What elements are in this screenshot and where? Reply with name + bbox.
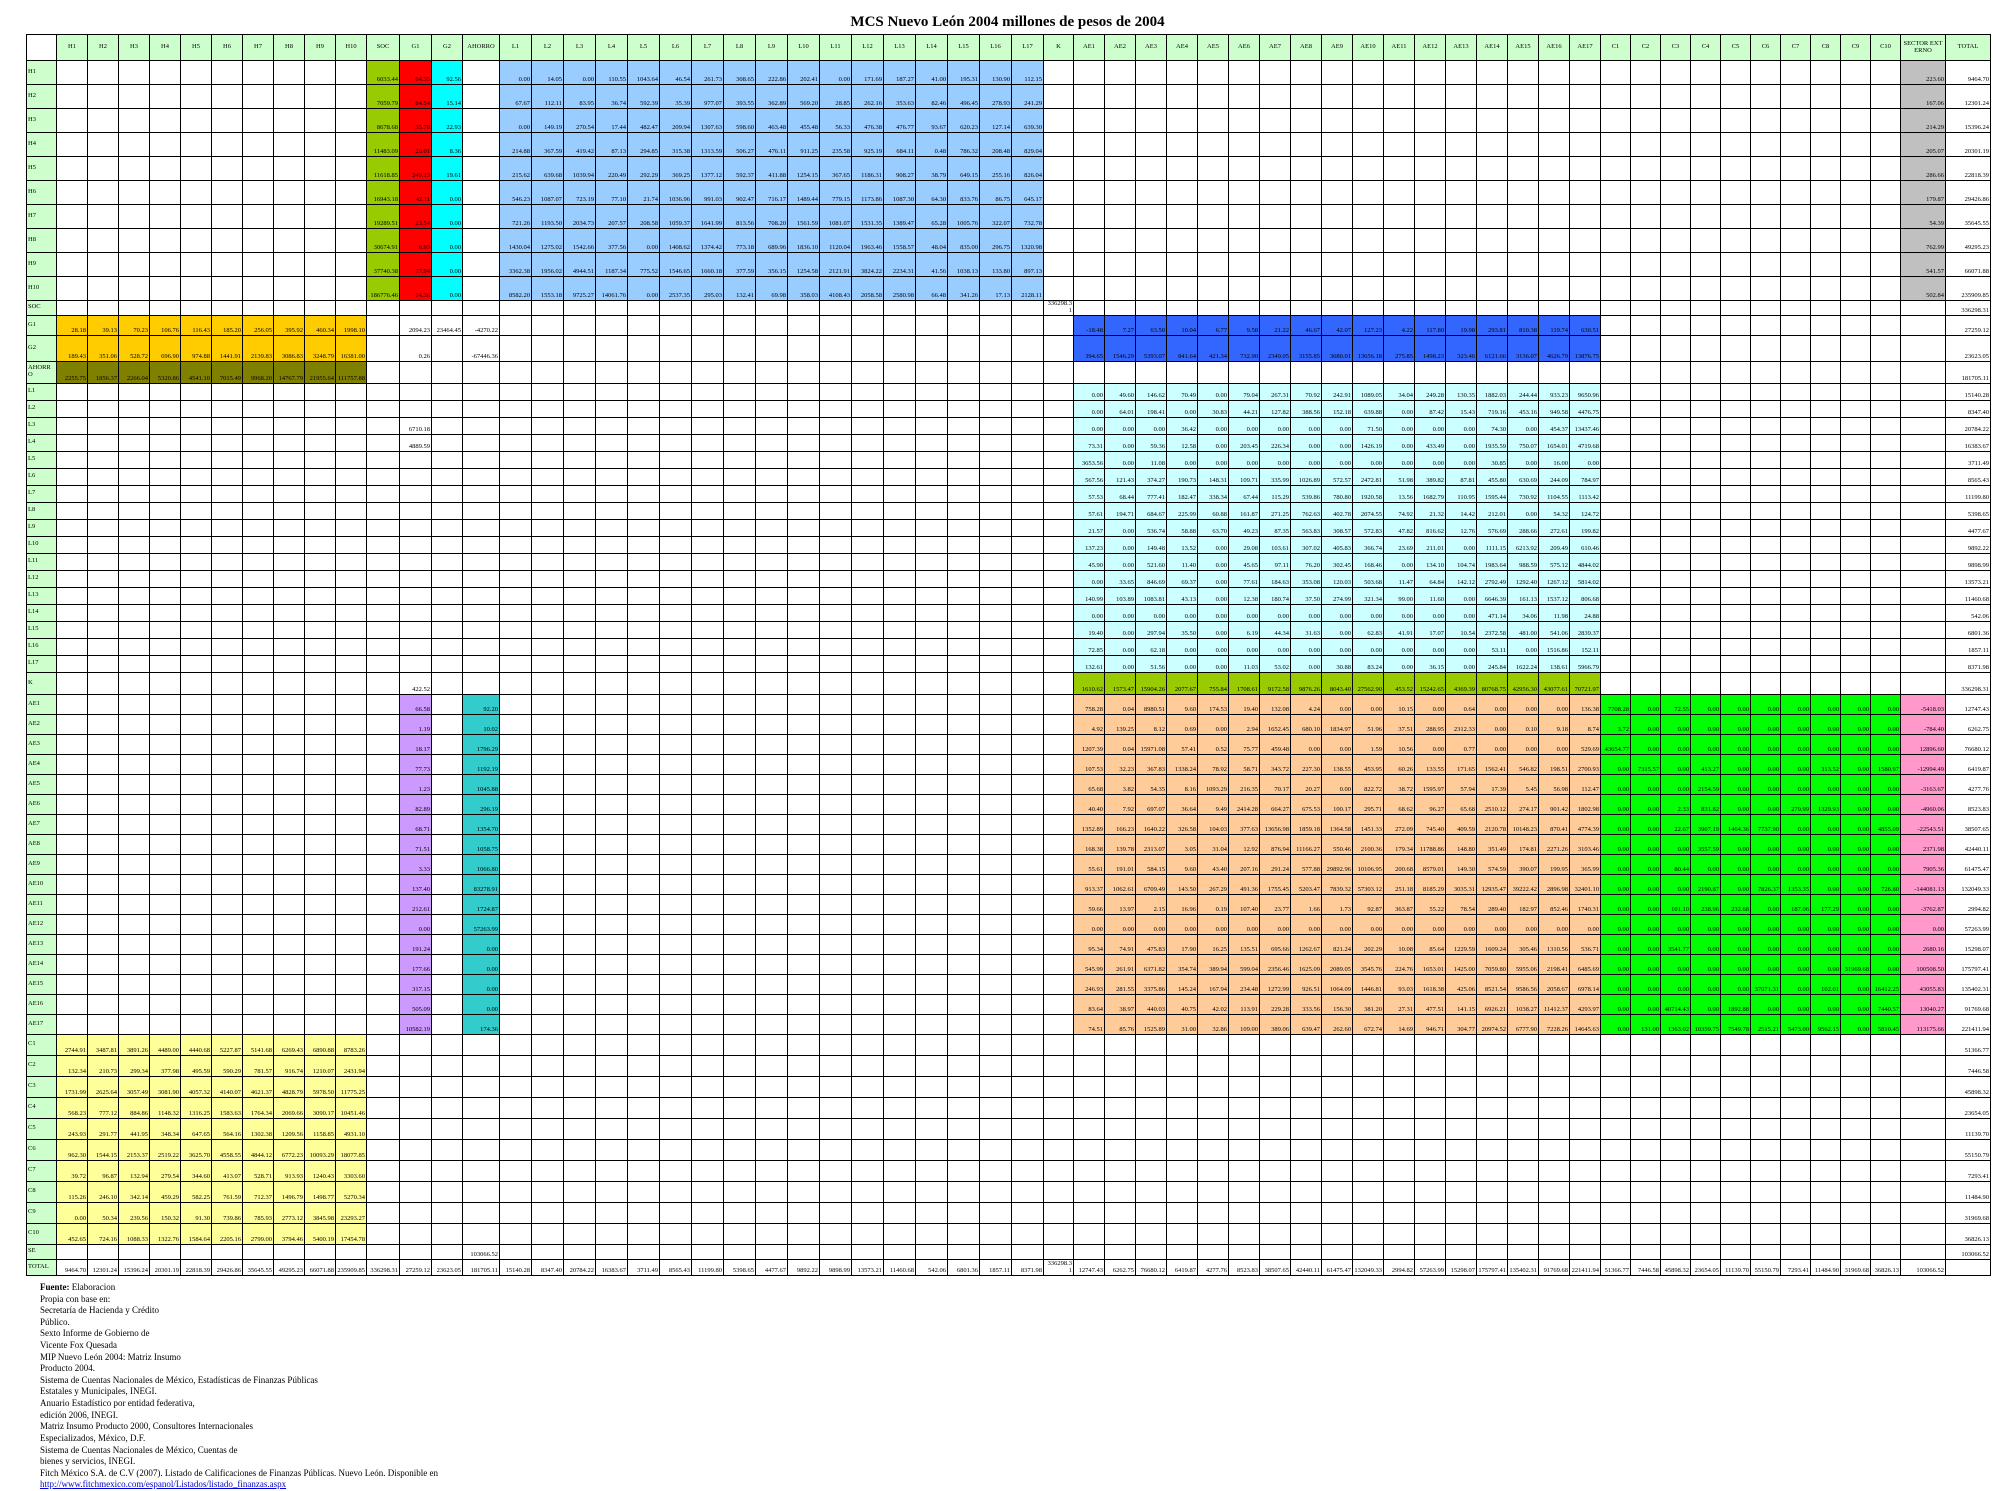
cell-TOTAL-H6: 29426.86 [212, 1259, 243, 1275]
cell-C8-L15 [948, 1181, 980, 1202]
cell-L2-AE14: 719.16 [1477, 400, 1508, 417]
cell-AE12-H5 [181, 914, 212, 934]
cell-AHORRO-L17 [1012, 361, 1044, 383]
cell-AE13-L14 [916, 934, 948, 954]
cell-H9-AE1 [1074, 253, 1105, 277]
cell-L14-L2 [532, 604, 564, 621]
col-header-H6: H6 [212, 35, 243, 61]
cell-AE5-L16 [980, 774, 1012, 794]
cell-AE10-H10 [336, 874, 367, 894]
cell-H4-C6 [1751, 133, 1781, 157]
cell-L10-C4 [1691, 536, 1721, 553]
cell-AE12-C2: 0.00 [1631, 914, 1661, 934]
cell-L6-TOTAL: 8565.43 [1946, 468, 1991, 485]
cell-AE11-C1: 0.00 [1601, 894, 1631, 914]
cell-AE15-L16 [980, 974, 1012, 994]
cell-C10-C8 [1811, 1223, 1841, 1244]
cell-C6-L4 [596, 1139, 628, 1160]
cell-L9-L10 [788, 519, 820, 536]
cell-L2-AE5: 30.83 [1198, 400, 1229, 417]
cell-AE8-C8: 0.00 [1811, 834, 1841, 854]
col-header-C9: C9 [1841, 35, 1871, 61]
cell-L5-H4 [150, 451, 181, 468]
cell-H4-L16: 208.48 [980, 133, 1012, 157]
cell-C9-L4 [596, 1202, 628, 1223]
cell-AE9-L9 [756, 854, 788, 874]
cell-H4-K [1044, 133, 1074, 157]
cell-TOTAL-L16: 1857.11 [980, 1259, 1012, 1275]
cell-H7-AE13 [1446, 205, 1477, 229]
cell-AE4-H10 [336, 754, 367, 774]
cell-G1-H4: 106.76 [150, 315, 181, 335]
cell-L17-H2 [88, 655, 119, 672]
cell-C7-C2 [1631, 1160, 1661, 1181]
cell-AE16-AE15: 1038.27 [1508, 994, 1539, 1014]
cell-C10-H10: 17454.78 [336, 1223, 367, 1244]
cell-AE6-AE8: 675.53 [1291, 794, 1322, 814]
cell-AE14-L2 [532, 954, 564, 974]
cell-AE8-C3: 0.00 [1661, 834, 1691, 854]
cell-L3-C3 [1661, 417, 1691, 434]
cell-AE9-C1: 0.00 [1601, 854, 1631, 874]
cell-AE14-H10 [336, 954, 367, 974]
cell-H1-AHORRO [463, 61, 500, 85]
cell-G2-L5 [628, 335, 660, 361]
cell-AE15-AE16: 2058.67 [1539, 974, 1570, 994]
cell-AE3-H4 [150, 734, 181, 754]
source-line: Fitch México S.A. de C.V (2007). Listado… [40, 1468, 438, 1479]
cell-C10-H5: 1584.64 [181, 1223, 212, 1244]
cell-C1-L15 [948, 1034, 980, 1055]
cell-H7-AE8 [1291, 205, 1322, 229]
cell-H4-AE12 [1415, 133, 1446, 157]
cell-H3-L4: 17.44 [596, 109, 628, 133]
cell-L6-L7 [692, 468, 724, 485]
cell-AE16-AE8: 333.56 [1291, 994, 1322, 1014]
cell-C9-AE15 [1508, 1202, 1539, 1223]
cell-AE5-AE1: 65.68 [1074, 774, 1105, 794]
cell-L12-C6 [1751, 570, 1781, 587]
cell-SE-H3 [119, 1244, 150, 1259]
cell-C1-L9 [756, 1034, 788, 1055]
cell-C1-C2 [1631, 1034, 1661, 1055]
cell-AE12-AE14: 0.00 [1477, 914, 1508, 934]
cell-AE14-L3 [564, 954, 596, 974]
cell-H7-L2: 1193.50 [532, 205, 564, 229]
cell-L7-AE8: 539.86 [1291, 485, 1322, 502]
col-header-C10: C10 [1871, 35, 1901, 61]
cell-C2-C7 [1781, 1055, 1811, 1076]
cell-SE-L3 [564, 1244, 596, 1259]
cell-AE1-AE9: 0.00 [1322, 694, 1353, 714]
cell-AE10-C6: 7826.37 [1751, 874, 1781, 894]
cell-AE12-AE3: 0.00 [1136, 914, 1167, 934]
cell-L7-H9 [305, 485, 336, 502]
cell-L10-L3 [564, 536, 596, 553]
cell-C10-H3: 1088.33 [119, 1223, 150, 1244]
cell-L4-L15 [948, 434, 980, 451]
cell-L3-L3 [564, 417, 596, 434]
cell-C1-AE15 [1508, 1034, 1539, 1055]
cell-H3-AHORRO [463, 109, 500, 133]
cell-L6-AE10: 2472.81 [1353, 468, 1384, 485]
cell-C1-H4: 4489.00 [150, 1034, 181, 1055]
cell-AE17-SOC [367, 1014, 400, 1034]
cell-AE1-H3 [119, 694, 150, 714]
cell-H9-AHORRO [463, 253, 500, 277]
cell-C1-H3: 3891.26 [119, 1034, 150, 1055]
cell-L13-C7 [1781, 587, 1811, 604]
cell-L9-C1 [1601, 519, 1631, 536]
cell-C5-AE1 [1074, 1118, 1105, 1139]
col-header-L1: L1 [500, 35, 532, 61]
cell-AE13-L10 [788, 934, 820, 954]
cell-SOC-AE11 [1384, 301, 1415, 316]
cell-AE7-H9 [305, 814, 336, 834]
col-header-G2: G2 [432, 35, 463, 61]
cell-AE10-L10 [788, 874, 820, 894]
cell-L11-AE4: 11.40 [1167, 553, 1198, 570]
cell-C9-AE13 [1446, 1202, 1477, 1223]
row-header-AE12: AE12 [27, 914, 57, 934]
cell-C9-H2: 50.34 [88, 1202, 119, 1223]
cell-C8-AE2 [1105, 1181, 1136, 1202]
cell-L12-H3 [119, 570, 150, 587]
cell-H9-C4 [1691, 253, 1721, 277]
cell-AE11-L5 [628, 894, 660, 914]
cell-C7-G1 [400, 1160, 432, 1181]
row-header-AE8: AE8 [27, 834, 57, 854]
cell-H9-H4 [150, 253, 181, 277]
cell-C8-C7 [1781, 1181, 1811, 1202]
cell-L6-AE9: 572.57 [1322, 468, 1353, 485]
cell-L4-AE5: 0.00 [1198, 434, 1229, 451]
cell-SE-L16 [980, 1244, 1012, 1259]
cell-AHORRO-TOTAL: 181705.11 [1946, 361, 1991, 383]
cell-L4-TOTAL: 16383.67 [1946, 434, 1991, 451]
cell-C6-L11 [820, 1139, 852, 1160]
cell-L8-K [1044, 502, 1074, 519]
cell-C2-AE6 [1229, 1055, 1260, 1076]
cell-AE1-L8 [724, 694, 756, 714]
cell-H6-H6 [212, 181, 243, 205]
col-header-AE14: AE14 [1477, 35, 1508, 61]
cell-L15-C3 [1661, 621, 1691, 638]
cell-AE12-AE7: 0.00 [1260, 914, 1291, 934]
cell-G1-L2 [532, 315, 564, 335]
cell-AE4-L13 [884, 754, 916, 774]
cell-C2-K [1044, 1055, 1074, 1076]
col-header-AE13: AE13 [1446, 35, 1477, 61]
cell-C1-C4 [1691, 1034, 1721, 1055]
cell-H10-C10 [1871, 277, 1901, 301]
cell-AE17-AE1: 74.51 [1074, 1014, 1105, 1034]
cell-C4-L10 [788, 1097, 820, 1118]
cell-C8-H6: 761.59 [212, 1181, 243, 1202]
cell-H9-AE15 [1508, 253, 1539, 277]
cell-G2-AE17: 13876.75 [1570, 335, 1601, 361]
cell-L2-AHORRO [463, 400, 500, 417]
cell-H2-SECTEXT: 167.06 [1901, 85, 1946, 109]
cell-H10-C2 [1631, 277, 1661, 301]
cell-AE2-AE4: 0.69 [1167, 714, 1198, 734]
cell-L14-L8 [724, 604, 756, 621]
cell-AHORRO-AE4 [1167, 361, 1198, 383]
cell-G2-AE5: 421.34 [1198, 335, 1229, 361]
cell-L16-AE17: 152.11 [1570, 638, 1601, 655]
cell-AE16-C10: 7440.57 [1871, 994, 1901, 1014]
cell-AE3-C9: 0.00 [1841, 734, 1871, 754]
cell-G2-L8 [724, 335, 756, 361]
cell-H9-AE13 [1446, 253, 1477, 277]
cell-AE13-C7: 0.00 [1781, 934, 1811, 954]
cell-H3-AE2 [1105, 109, 1136, 133]
cell-AE1-AE1: 758.28 [1074, 694, 1105, 714]
cell-C1-AE12 [1415, 1034, 1446, 1055]
cell-L17-L15 [948, 655, 980, 672]
cell-L4-L13 [884, 434, 916, 451]
cell-C1-TOTAL: 51366.77 [1946, 1034, 1991, 1055]
cell-AE15-L6 [660, 974, 692, 994]
cell-H3-L14: 93.67 [916, 109, 948, 133]
cell-H6-H2 [88, 181, 119, 205]
cell-AE13-L2 [532, 934, 564, 954]
source-line: Estatales y Municipales, INEGI. [40, 1386, 438, 1397]
cell-C10-L5 [628, 1223, 660, 1244]
cell-H7-AE4 [1167, 205, 1198, 229]
cell-L9-C10 [1871, 519, 1901, 536]
cell-TOTAL-H9: 66071.88 [305, 1259, 336, 1275]
cell-L1-AE13: 130.35 [1446, 383, 1477, 400]
cell-C5-H8: 1209.56 [274, 1118, 305, 1139]
row-header-C9: C9 [27, 1202, 57, 1223]
cell-L12-L4 [596, 570, 628, 587]
cell-AE11-L1 [500, 894, 532, 914]
cell-H5-AE13 [1446, 157, 1477, 181]
cell-H9-L12: 3824.22 [852, 253, 884, 277]
cell-C10-L6 [660, 1223, 692, 1244]
cell-L12-H6 [212, 570, 243, 587]
cell-AE5-L2 [532, 774, 564, 794]
cell-H4-AE4 [1167, 133, 1198, 157]
cell-L11-L6 [660, 553, 692, 570]
cell-H9-L4: 1187.34 [596, 253, 628, 277]
cell-C8-AE15 [1508, 1181, 1539, 1202]
cell-L3-L12 [852, 417, 884, 434]
cell-AE3-AHORRO: 1796.29 [463, 734, 500, 754]
cell-AE4-AE9: 138.55 [1322, 754, 1353, 774]
cell-C1-SOC [367, 1034, 400, 1055]
cell-L16-H10 [336, 638, 367, 655]
cell-AE17-AE12: 946.71 [1415, 1014, 1446, 1034]
cell-AE4-C6: 0.00 [1751, 754, 1781, 774]
cell-C3-H3: 3057.49 [119, 1076, 150, 1097]
cell-AE2-H10 [336, 714, 367, 734]
cell-AE1-L2 [532, 694, 564, 714]
cell-C2-C2 [1631, 1055, 1661, 1076]
source-line-text: Anuario Estadístico por entidad federati… [40, 1398, 195, 1408]
cell-L3-AE14: 74.30 [1477, 417, 1508, 434]
cell-AE12-L13 [884, 914, 916, 934]
cell-L1-C2 [1631, 383, 1661, 400]
cell-C9-H8: 2773.12 [274, 1202, 305, 1223]
cell-L10-H6 [212, 536, 243, 553]
cell-AE15-C4: 0.00 [1691, 974, 1721, 994]
cell-AE4-H9 [305, 754, 336, 774]
cell-C8-L3 [564, 1181, 596, 1202]
cell-L11-C1 [1601, 553, 1631, 570]
cell-C10-K [1044, 1223, 1074, 1244]
cell-AE1-C2: 0.00 [1631, 694, 1661, 714]
cell-H3-C6 [1751, 109, 1781, 133]
cell-AE13-H4 [150, 934, 181, 954]
cell-H2-L1: 67.67 [500, 85, 532, 109]
cell-SOC-C1 [1601, 301, 1631, 316]
cell-C5-H6: 564.16 [212, 1118, 243, 1139]
cell-L11-L5 [628, 553, 660, 570]
cell-C10-AE3 [1136, 1223, 1167, 1244]
cell-G2-K [1044, 335, 1074, 361]
cell-AE9-C7: 0.00 [1781, 854, 1811, 874]
cell-AE1-C9: 0.00 [1841, 694, 1871, 714]
cell-C8-SECTEXT [1901, 1181, 1946, 1202]
cell-C4-L16 [980, 1097, 1012, 1118]
cell-K-L12 [852, 672, 884, 694]
cell-L6-SECTEXT [1901, 468, 1946, 485]
cell-AE13-C6: 0.00 [1751, 934, 1781, 954]
cell-L2-L9 [756, 400, 788, 417]
cell-L16-AE10: 0.00 [1353, 638, 1384, 655]
cell-L10-SOC [367, 536, 400, 553]
cell-H7-C2 [1631, 205, 1661, 229]
cell-L4-AE14: 1935.59 [1477, 434, 1508, 451]
cell-C7-L6 [660, 1160, 692, 1181]
cell-H10-AE5 [1198, 277, 1229, 301]
cell-AE8-L9 [756, 834, 788, 854]
cell-H3-AE1 [1074, 109, 1105, 133]
cell-AE1-L6 [660, 694, 692, 714]
cell-TOTAL-C5: 11139.70 [1721, 1259, 1751, 1275]
cell-H1-L7: 261.73 [692, 61, 724, 85]
cell-TOTAL-L13: 11460.68 [884, 1259, 916, 1275]
cell-L1-C7 [1781, 383, 1811, 400]
cell-AE8-SOC [367, 834, 400, 854]
cell-L10-C2 [1631, 536, 1661, 553]
cell-C9-L10 [788, 1202, 820, 1223]
cell-L17-C5 [1721, 655, 1751, 672]
cell-AE4-L9 [756, 754, 788, 774]
cell-H5-L9: 411.88 [756, 157, 788, 181]
cell-TOTAL-L15: 6801.36 [948, 1259, 980, 1275]
cell-AE10-AE10: 57303.12 [1353, 874, 1384, 894]
cell-AE16-AE17: 4293.97 [1570, 994, 1601, 1014]
cell-C8-L10 [788, 1181, 820, 1202]
cell-C10-L14 [916, 1223, 948, 1244]
cell-G1-L13 [884, 315, 916, 335]
cell-L8-H1 [57, 502, 88, 519]
cell-AE5-H9 [305, 774, 336, 794]
cell-AE10-AE11: 251.18 [1384, 874, 1415, 894]
cell-G1-H10: 1998.10 [336, 315, 367, 335]
cell-AE16-C9: 0.00 [1841, 994, 1871, 1014]
cell-H9-L17: 897.13 [1012, 253, 1044, 277]
cell-L4-C10 [1871, 434, 1901, 451]
cell-AE4-H8 [274, 754, 305, 774]
source-url-link[interactable]: http://www.fitchmexico.com/espanol/Lista… [40, 1479, 286, 1489]
cell-AE9-AE3: 584.15 [1136, 854, 1167, 874]
cell-L17-AHORRO [463, 655, 500, 672]
cell-AE13-C8: 0.00 [1811, 934, 1841, 954]
cell-L2-H3 [119, 400, 150, 417]
cell-AE13-L15 [948, 934, 980, 954]
cell-AE12-C9: 0.00 [1841, 914, 1871, 934]
cell-H6-H9 [305, 181, 336, 205]
cell-C8-TOTAL: 11484.90 [1946, 1181, 1991, 1202]
cell-C5-C7 [1781, 1118, 1811, 1139]
cell-L2-L8 [724, 400, 756, 417]
cell-L7-H3 [119, 485, 150, 502]
cell-C2-AE16 [1539, 1055, 1570, 1076]
cell-L8-C8 [1811, 502, 1841, 519]
cell-AE10-TOTAL: 132049.33 [1946, 874, 1991, 894]
cell-AE11-G2 [432, 894, 463, 914]
cell-AE15-AE10: 1446.81 [1353, 974, 1384, 994]
cell-H7-H9 [305, 205, 336, 229]
cell-L13-C6 [1751, 587, 1781, 604]
cell-L15-AE1: 19.40 [1074, 621, 1105, 638]
cell-G1-AE11: 4.22 [1384, 315, 1415, 335]
cell-H8-AE13 [1446, 229, 1477, 253]
cell-AE5-L10 [788, 774, 820, 794]
cell-C4-H1: 568.23 [57, 1097, 88, 1118]
cell-AE11-C5: 232.68 [1721, 894, 1751, 914]
cell-AE8-TOTAL: 42440.11 [1946, 834, 1991, 854]
cell-C9-C1 [1601, 1202, 1631, 1223]
cell-AE6-H7 [243, 794, 274, 814]
cell-AE17-AE8: 639.47 [1291, 1014, 1322, 1034]
cell-C5-L10 [788, 1118, 820, 1139]
cell-AE2-AE14: 0.00 [1477, 714, 1508, 734]
cell-L5-AE9: 0.00 [1322, 451, 1353, 468]
cell-L2-K [1044, 400, 1074, 417]
cell-G1-AE17: 630.51 [1570, 315, 1601, 335]
cell-L17-AE16: 138.61 [1539, 655, 1570, 672]
cell-C4-H7: 1764.34 [243, 1097, 274, 1118]
cell-L8-H6 [212, 502, 243, 519]
cell-L14-H1 [57, 604, 88, 621]
cell-C2-AE12 [1415, 1055, 1446, 1076]
cell-AE10-L2 [532, 874, 564, 894]
cell-H5-H10 [336, 157, 367, 181]
cell-AE11-L12 [852, 894, 884, 914]
cell-L15-H4 [150, 621, 181, 638]
cell-H2-C9 [1841, 85, 1871, 109]
cell-AE17-L12 [852, 1014, 884, 1034]
cell-L9-AE3: 536.74 [1136, 519, 1167, 536]
cell-AHORRO-AE3 [1136, 361, 1167, 383]
cell-H4-C9 [1841, 133, 1871, 157]
cell-AE2-C1: 3.72 [1601, 714, 1631, 734]
cell-SOC-AE4 [1167, 301, 1198, 316]
cell-AE10-H4 [150, 874, 181, 894]
cell-AE15-H4 [150, 974, 181, 994]
cell-C10-AE12 [1415, 1223, 1446, 1244]
cell-C7-C4 [1691, 1160, 1721, 1181]
cell-TOTAL-TOTAL [1946, 1259, 1991, 1275]
cell-L8-L6 [660, 502, 692, 519]
cell-AE16-C7: 0.00 [1781, 994, 1811, 1014]
cell-AE6-H10 [336, 794, 367, 814]
